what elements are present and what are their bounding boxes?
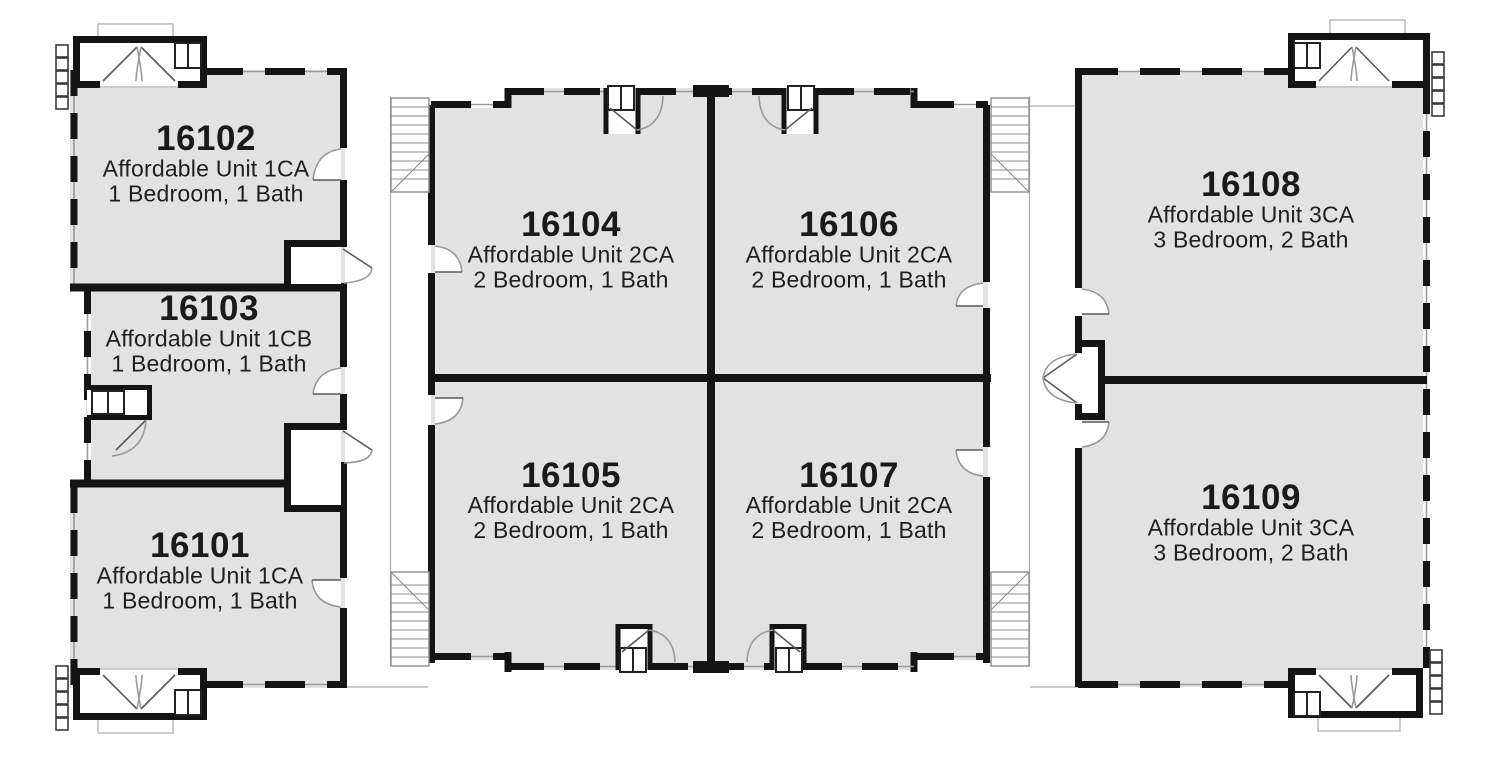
unit-layout: 3 Bedroom, 2 Bath	[1153, 540, 1348, 566]
unit-type: Affordable Unit 1CB	[106, 326, 313, 352]
unit-number: 16101	[150, 526, 250, 565]
unit-number: 16104	[521, 205, 621, 244]
porch-step	[1330, 20, 1405, 33]
unit-number: 16107	[799, 456, 899, 495]
unit-number: 16105	[521, 456, 621, 495]
stairs-top-right	[991, 98, 1029, 192]
unit-type: Affordable Unit 1CA	[97, 563, 304, 589]
wall-cap	[693, 661, 729, 673]
porch-step	[98, 24, 173, 36]
unit-type: Affordable Unit 3CA	[1148, 202, 1355, 228]
unit-number: 16103	[159, 289, 259, 328]
utility-meters-top-left	[56, 45, 68, 109]
stairs-bottom-right	[991, 572, 1029, 666]
building-left: 16102 Affordable Unit 1CA 1 Bedroom, 1 B…	[56, 24, 428, 733]
porch-step	[98, 720, 173, 733]
floor-plan-canvas: 16102 Affordable Unit 1CA 1 Bedroom, 1 B…	[0, 0, 1500, 762]
door-arc	[344, 268, 372, 283]
utility-meters-bottom-right	[1430, 650, 1442, 714]
unit-number: 16106	[799, 205, 899, 244]
unit-type: Affordable Unit 1CA	[103, 156, 310, 182]
unit-layout: 1 Bedroom, 1 Bath	[111, 351, 306, 377]
unit-type: Affordable Unit 2CA	[746, 492, 953, 518]
unit-number: 16102	[156, 119, 256, 158]
unit-layout: 2 Bedroom, 1 Bath	[473, 267, 668, 293]
stairs-top-left	[391, 98, 429, 192]
building-middle: 16104 Affordable Unit 2CA 2 Bedroom, 1 B…	[391, 85, 1030, 673]
unit-layout: 2 Bedroom, 1 Bath	[751, 517, 946, 543]
utility-meters-bottom-left	[56, 666, 68, 730]
unit-number: 16109	[1201, 478, 1301, 517]
unit-type: Affordable Unit 3CA	[1148, 515, 1355, 541]
porch-step	[1318, 718, 1400, 731]
double-door-arcs	[1043, 354, 1077, 403]
unit-type: Affordable Unit 2CA	[746, 242, 953, 268]
floor-plan-page: 16102 Affordable Unit 1CA 1 Bedroom, 1 B…	[0, 0, 1500, 762]
stairs-bottom-left	[391, 572, 429, 666]
unit-layout: 3 Bedroom, 2 Bath	[1153, 227, 1348, 253]
door-leaf	[343, 249, 372, 268]
unit-layout: 1 Bedroom, 1 Bath	[108, 181, 303, 207]
unit-type: Affordable Unit 2CA	[468, 492, 675, 518]
building-right: 16108 Affordable Unit 3CA 3 Bedroom, 2 B…	[1030, 20, 1444, 731]
unit-layout: 1 Bedroom, 1 Bath	[102, 588, 297, 614]
door-arc	[344, 450, 372, 463]
unit-type: Affordable Unit 2CA	[468, 242, 675, 268]
utility-meters-top-right	[1432, 52, 1444, 116]
unit-layout: 2 Bedroom, 1 Bath	[473, 517, 668, 543]
door-leaf	[343, 431, 372, 450]
unit-layout: 2 Bedroom, 1 Bath	[751, 267, 946, 293]
double-door-leaves	[1043, 354, 1077, 403]
unit-number: 16108	[1201, 165, 1301, 204]
